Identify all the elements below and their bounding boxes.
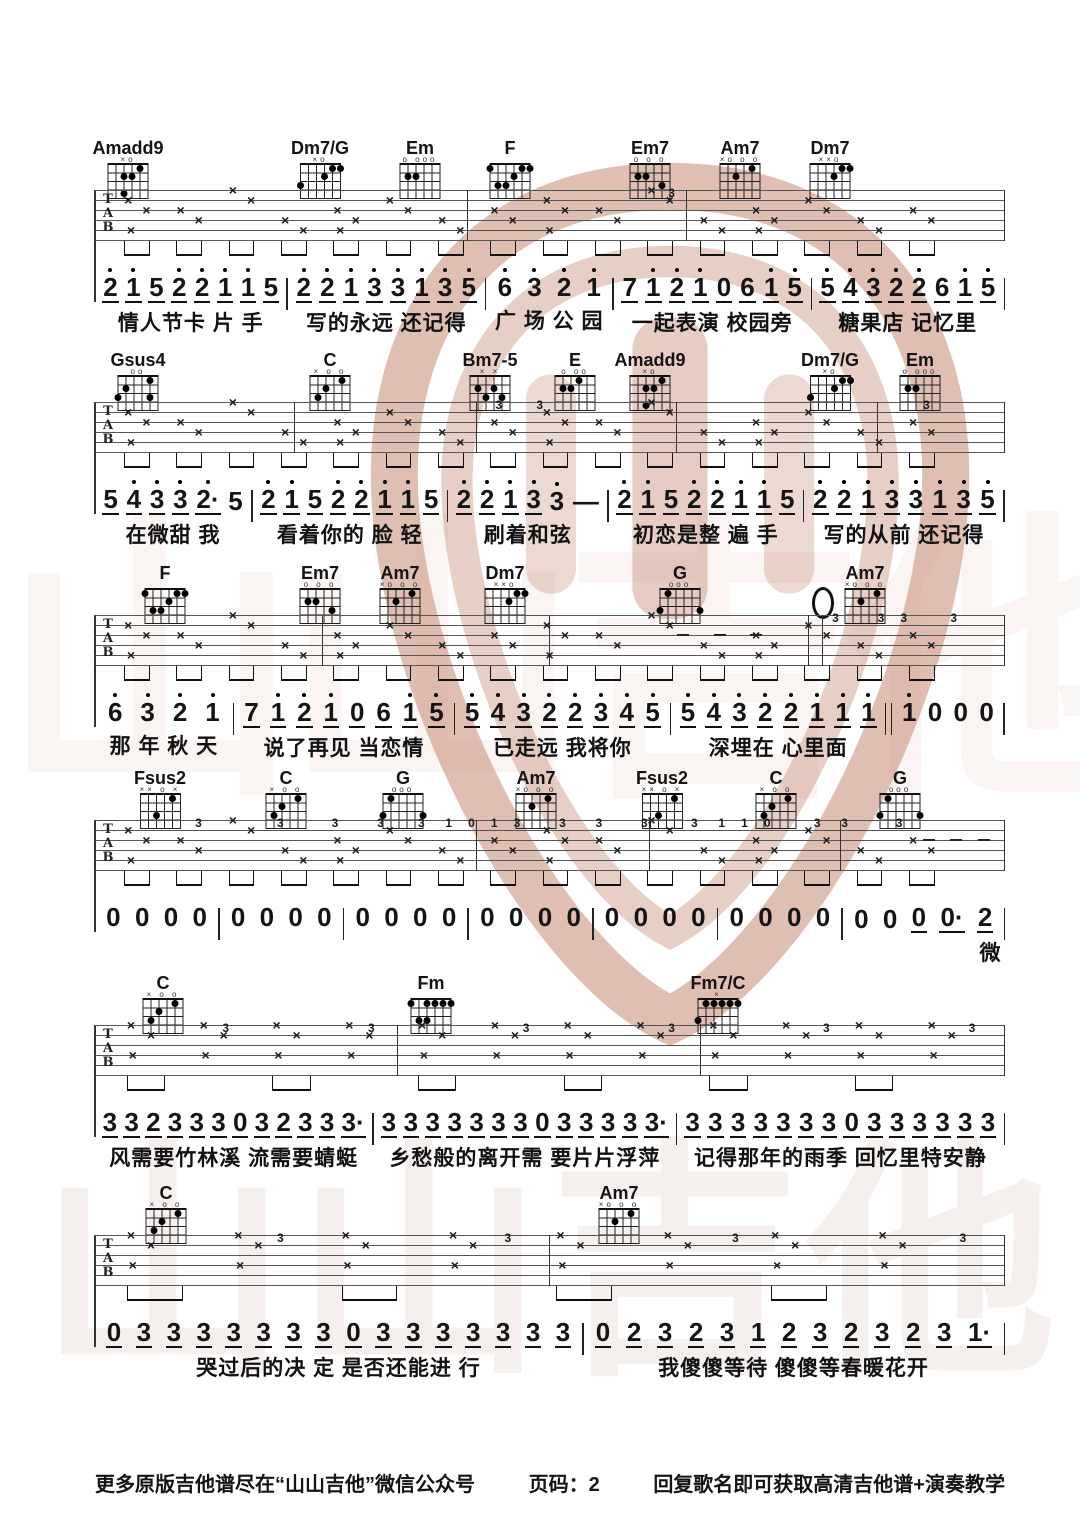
note-number: 3: [936, 1318, 952, 1348]
note-number: 0: [412, 903, 428, 931]
note-number: 2: [194, 273, 210, 303]
note-number: 4: [619, 698, 635, 728]
note-number: 5: [428, 698, 444, 728]
melody-note: 5: [428, 693, 444, 728]
strum-x-mark: ×: [709, 1020, 717, 1030]
staff-barline: [686, 190, 687, 241]
melody-note: 1: [763, 268, 779, 303]
melody-notes: 0000: [718, 898, 841, 931]
note-number: 1: [343, 273, 359, 303]
strum-x-mark: ×: [613, 215, 621, 225]
melody-note: 2: [977, 898, 993, 933]
melody-note: 0: [508, 898, 524, 931]
beam-group: [386, 241, 412, 256]
melody-note: 2: [686, 480, 702, 515]
melody-note: 1: [957, 268, 973, 303]
melody-note: 2: [669, 268, 685, 303]
strum-x-mark: ×: [770, 845, 778, 855]
melody-note: 3: [189, 1103, 205, 1138]
melody-notes: 0000: [95, 898, 218, 931]
melody-note: 5: [779, 480, 795, 515]
melody-note: 5: [102, 480, 118, 515]
strum-x-mark: ×: [490, 417, 498, 427]
note-number: 0: [565, 903, 581, 931]
strum-x-mark: ×: [124, 195, 132, 205]
chord-finger-dot: [432, 1000, 439, 1007]
strum-x-mark: ×: [127, 1230, 135, 1240]
note-number: 3: [254, 1108, 270, 1138]
jianpu-line: 332333032333·风需要竹林溪 流需要蜻蜓3333333033333·乡…: [95, 1103, 1005, 1172]
melody-note: 0: [690, 898, 706, 931]
melody-note: 5: [148, 268, 164, 303]
fret-number: 3: [536, 400, 543, 410]
note-number: 5: [979, 485, 995, 515]
note-number: 2·: [195, 485, 220, 515]
chord-finger-dot: [136, 165, 143, 172]
chord-finger-dot: [917, 812, 924, 819]
lyric-text: 刷着和弦: [448, 519, 607, 549]
note-number: 5: [819, 273, 835, 303]
strum-x-mark: ×: [771, 1230, 779, 1240]
strum-x-mark: ×: [909, 417, 917, 427]
beam-group: [543, 241, 569, 256]
beam-group: [438, 871, 464, 886]
melody-note: 2: [567, 693, 583, 728]
strum-x-mark: ×: [545, 437, 553, 447]
melody-note: 3: [405, 1313, 421, 1348]
tab-staff: TAB××××××××××××××××××××××××××××××××××××3…: [95, 1025, 1005, 1076]
chord-finger-dot: [148, 1017, 155, 1024]
strum-x-mark: ×: [927, 427, 935, 437]
chord-name: Gsus4: [110, 352, 165, 368]
note-number: 0: [595, 1318, 611, 1348]
chord-finger-dot: [858, 598, 865, 605]
strum-x-mark: ×: [613, 427, 621, 437]
chord-finger-dot: [315, 394, 322, 401]
melody-note: 0: [349, 693, 365, 728]
beam-group: [752, 666, 778, 681]
note-number: 2: [669, 273, 685, 303]
melody-note: 3: [136, 1313, 152, 1348]
jianpu-line: 6321那 年 秋 天71210615说了再见 当恋情54322345已走远 我…: [95, 693, 1005, 762]
strum-x-mark: ×: [909, 630, 917, 640]
lyric-text: 说了再见 当恋情: [234, 732, 453, 762]
chord-finger-dot: [642, 385, 649, 392]
melody-note: 1: [323, 693, 339, 728]
note-number: 0: [953, 698, 969, 726]
chord-finger-dot: [560, 385, 567, 392]
note-number: 2: [688, 1318, 704, 1348]
beam-group: [127, 1286, 183, 1301]
fret-number: 3: [668, 188, 675, 198]
strum-x-mark: ×: [595, 835, 603, 845]
measure-barline: [1004, 278, 1006, 310]
note-number: 3: [210, 1108, 226, 1138]
melody-note: 1: [756, 480, 772, 515]
melody-note: 1: [402, 693, 418, 728]
tab-letter: B: [102, 221, 114, 234]
strum-x-mark: ×: [638, 1050, 646, 1060]
strum-x-mark: ×: [636, 1020, 644, 1030]
melody-note: 0·: [939, 898, 964, 933]
measure-barline: [1004, 908, 1006, 940]
melody-measure: 54322345已走远 我将你: [455, 693, 669, 762]
chord-finger-dot: [545, 795, 552, 802]
tab-staff: TAB××××××××××××××××××××××××××××××××××××3…: [95, 820, 1005, 871]
strum-x-mark: ×: [647, 397, 655, 407]
strum-x-mark: ×: [543, 825, 551, 835]
lyric-text: 情人节卡 片 手: [95, 307, 286, 337]
melody-note: 3: [172, 480, 188, 515]
note-number: 0: [815, 903, 831, 931]
strum-x-mark: ×: [236, 1260, 244, 1270]
strum-x-mark: ×: [584, 1030, 592, 1040]
note-number: 3: [512, 1108, 528, 1138]
strum-x-mark: ×: [755, 437, 763, 447]
chord-finger-dot: [702, 1000, 709, 1007]
strum-x-mark: ×: [247, 825, 255, 835]
note-number: 5: [464, 698, 480, 728]
note-number: 3: [821, 1108, 837, 1138]
strum-x-mark: ×: [456, 650, 464, 660]
strum-x-mark: ×: [142, 835, 150, 845]
note-number: 5: [980, 273, 996, 303]
melody-notes: 0000: [594, 898, 717, 931]
fret-number: 3: [969, 1023, 976, 1033]
strum-x-mark: ×: [274, 1050, 282, 1060]
note-number: 3: [166, 1318, 182, 1348]
melody-notes: 33333330333333: [677, 1103, 1003, 1138]
chord-finger-dot: [726, 1000, 733, 1007]
fret-number: 3: [596, 818, 603, 828]
strum-x-mark: ×: [247, 407, 255, 417]
chord-finger-dot: [323, 385, 330, 392]
melody-note: 5: [464, 693, 480, 728]
jianpu-line: 0000000000000000000000000000·2微: [95, 898, 1005, 967]
note-number: 2: [556, 273, 572, 301]
note-number: 0: [232, 1108, 248, 1138]
chord-finger-dot: [120, 173, 127, 180]
melody-notes: 0232312323231·: [584, 1313, 1004, 1348]
strum-x-mark: ×: [386, 620, 394, 630]
note-number: 1: [204, 698, 220, 726]
note-number: 3: [593, 698, 609, 728]
chord-string-markers: ×× o ×: [636, 786, 688, 793]
strum-x-mark: ×: [561, 205, 569, 215]
strum-x-mark: ×: [595, 630, 603, 640]
strum-x-mark: ×: [857, 427, 865, 437]
note-number: 3: [319, 1108, 335, 1138]
note-number: 1: [763, 273, 779, 303]
melody-note: 3: [468, 1103, 484, 1138]
melody-measure: 0000·2微: [843, 898, 1004, 967]
strum-x-mark: ×: [656, 1030, 664, 1040]
note-number: 0: [911, 903, 927, 933]
strum-x-mark: ×: [345, 1020, 353, 1030]
strum-x-mark: ×: [438, 215, 446, 225]
note-number: 0·: [939, 903, 964, 933]
melody-note: 2: [556, 268, 572, 301]
beam-group: [556, 1286, 612, 1301]
fret-number: 3: [950, 613, 957, 623]
strum-x-mark: ×: [545, 855, 553, 865]
melody-note: 3: [730, 1103, 746, 1138]
fret-number: 3: [277, 1233, 284, 1243]
chord-name: Am7: [845, 565, 886, 581]
melody-note: 4: [705, 693, 721, 728]
melody-note: 3: [490, 1103, 506, 1138]
strum-x-mark: ×: [438, 1030, 446, 1040]
melody-note: 1: [750, 1313, 766, 1348]
note-number: 3: [884, 485, 900, 515]
melody-measure: 71210615一起表演 校园旁: [614, 268, 811, 337]
chord-name: G: [383, 770, 424, 786]
fret-number: 3: [523, 1023, 530, 1033]
melody-note: 5: [644, 693, 660, 728]
note-number: 1: [750, 1318, 766, 1348]
note-number: 2: [757, 698, 773, 728]
strum-x-mark: ×: [229, 185, 237, 195]
melody-note: 3: [166, 1313, 182, 1348]
beam-group: [700, 241, 726, 256]
note-number: 3: [731, 698, 747, 728]
melody-notes: 0000: [344, 898, 467, 931]
staff-barline: [549, 1235, 550, 1286]
melody-notes: 22133135: [804, 480, 1003, 515]
note-number: 0: [383, 903, 399, 931]
melody-note: 2: [781, 1313, 797, 1348]
chord-finger-dot: [305, 598, 312, 605]
melody-note: 2: [688, 1313, 704, 1348]
note-number: 2: [353, 485, 369, 515]
beam-group: [229, 871, 255, 886]
melody-note: 3: [798, 1103, 814, 1138]
strum-x-mark: ×: [857, 845, 865, 855]
lyric-text: 乡愁般的离开需 要片片浮萍: [374, 1142, 676, 1172]
strum-x-mark: ×: [511, 1030, 519, 1040]
strum-x-mark: ×: [490, 205, 498, 215]
chord-finger-dot: [568, 385, 575, 392]
strum-x-mark: ×: [147, 1240, 155, 1250]
beam-group: [490, 871, 516, 886]
note-number: 3·: [341, 1108, 366, 1138]
melody-note: 3: [719, 1313, 735, 1348]
chord-string-markers: o ooo: [400, 156, 441, 163]
chord-string-markers: ooo: [880, 786, 921, 793]
lyric-text: 在微甜 我: [95, 519, 251, 549]
strum-x-mark: ×: [469, 1240, 477, 1250]
chord-finger-dot: [150, 607, 157, 614]
melody-note: 4: [619, 693, 635, 728]
chord-finger-dot: [424, 1000, 431, 1007]
strum-x-mark: ×: [352, 640, 360, 650]
note-number: 2: [836, 485, 852, 515]
strum-x-mark: ×: [299, 225, 307, 235]
chord-name: Am7: [516, 770, 557, 786]
chord-string-markers: × o o: [146, 1201, 187, 1208]
melody-note: 1: [932, 480, 948, 515]
strum-x-mark: ×: [299, 437, 307, 447]
note-number: 6: [107, 698, 123, 726]
beam-group: [176, 871, 202, 886]
strum-x-mark: ×: [543, 620, 551, 630]
lyric-text: 写的永远 还记得: [288, 307, 485, 337]
strum-x-mark: ×: [647, 610, 655, 620]
melody-note: 3: [874, 1313, 890, 1348]
chord-finger-dot: [511, 173, 518, 180]
chord-string-markers: ×o o o: [845, 581, 886, 588]
note-number: 1: [400, 485, 416, 515]
strum-x-mark: ×: [823, 417, 831, 427]
melody-note: 1: [204, 693, 220, 726]
melody-note: 3: [495, 1313, 511, 1348]
beam-group: [281, 241, 307, 256]
melody-note: 0: [786, 898, 802, 931]
melody-note: 0: [911, 898, 927, 933]
strum-x-mark: ×: [804, 825, 812, 835]
beam-group: [752, 871, 778, 886]
chord-finger-dot: [529, 803, 536, 810]
melody-note: 3: [319, 1103, 335, 1138]
chord-finger-dot: [839, 377, 846, 384]
chord-finger-dot: [329, 165, 336, 172]
note-number: 0: [853, 905, 869, 933]
chord-finger-dot: [475, 385, 482, 392]
melody-note: 3: [593, 693, 609, 728]
melody-note: 3: [375, 1313, 391, 1348]
beam-group: [595, 241, 621, 256]
lyric-text: 一起表演 校园旁: [614, 307, 811, 337]
strum-x-mark: ×: [927, 845, 935, 855]
measure-barline: [1004, 1113, 1006, 1145]
chord-finger-dot: [166, 598, 173, 605]
strum-x-mark: ×: [176, 630, 184, 640]
strum-x-mark: ×: [176, 835, 184, 845]
note-number: 0: [604, 903, 620, 931]
note-number: 2: [145, 1108, 161, 1138]
beam-group: [752, 241, 778, 256]
note-number: 1: [645, 273, 661, 303]
strum-x-mark: ×: [791, 1240, 799, 1250]
melody-note: 1·: [967, 1313, 992, 1348]
melody-measure: 0000: [344, 898, 467, 967]
note-number: 5: [644, 698, 660, 728]
beam-group: [595, 871, 621, 886]
note-number: 1: [932, 485, 948, 515]
melody-notes: 6321: [486, 268, 612, 301]
melody-note: 3: [912, 1103, 928, 1138]
beam-group: [281, 666, 307, 681]
chord-finger-dot: [847, 165, 854, 172]
strum-x-mark: ×: [857, 215, 865, 225]
chord-name: Fm: [411, 975, 452, 991]
strum-x-mark: ×: [927, 215, 935, 225]
melody-note: 3: [955, 480, 971, 515]
staff-barline: [1004, 1235, 1005, 1286]
beam-group: [752, 453, 778, 468]
melody-note: 3: [366, 268, 382, 303]
tab-letter: B: [102, 1266, 114, 1279]
beam-group: [771, 1286, 827, 1301]
chord-name: C: [756, 770, 797, 786]
strum-x-mark: ×: [336, 437, 344, 447]
melody-note: 4: [842, 268, 858, 303]
beam-group: [700, 871, 726, 886]
melody-notes: 54322615: [812, 268, 1003, 303]
strum-x-mark: ×: [948, 1030, 956, 1040]
note-number: 1: [376, 485, 392, 515]
beam-group: [909, 241, 935, 256]
strum-x-mark: ×: [684, 1240, 692, 1250]
melody-note: 3: [196, 1313, 212, 1348]
beam-group: [418, 1076, 456, 1091]
melody-note: 5: [786, 268, 802, 303]
rest-dash: [978, 839, 990, 841]
melody-measure: 21522115初恋是整 遍 手: [609, 480, 803, 549]
melody-note: 0: [728, 898, 744, 931]
tab-letter: B: [102, 1056, 114, 1069]
note-number: 3: [600, 1108, 616, 1138]
beam-group: [490, 666, 516, 681]
tab-letter: A: [102, 207, 114, 220]
strum-x-mark: ×: [545, 225, 553, 235]
strum-x-mark: ×: [142, 417, 150, 427]
chord-finger-dot: [147, 394, 154, 401]
strum-x-mark: ×: [773, 1260, 781, 1270]
fret-number: 3: [505, 1233, 512, 1243]
fret-number: 3: [418, 818, 425, 828]
strum-x-mark: ×: [127, 1020, 135, 1030]
melody-note: 5: [423, 480, 439, 515]
chord-finger-dot: [503, 182, 510, 189]
note-number: 5: [663, 485, 679, 515]
sheet-music-page: 山山吉他 山山吉他 Amadd9×oDm7/G×oEmo oooFEm7o o …: [0, 0, 1080, 1527]
note-number: 3: [468, 1108, 484, 1138]
strum-x-mark: ×: [343, 1260, 351, 1270]
melody-note: 0: [354, 898, 370, 931]
strum-x-mark: ×: [404, 205, 412, 215]
strum-x-mark: ×: [509, 427, 517, 437]
melody-measure: 0000: [95, 898, 218, 967]
strum-x-mark: ×: [333, 630, 341, 640]
melody-note: 1: [692, 268, 708, 303]
chord-name: Amadd9: [614, 352, 685, 368]
melody-note: 3: [525, 1313, 541, 1348]
melody-note: 3: [403, 1103, 419, 1138]
strum-x-mark: ×: [281, 640, 289, 650]
melody-note: 3: [865, 268, 881, 303]
fret-number: 3: [514, 818, 521, 828]
strum-x-mark: ×: [176, 205, 184, 215]
melody-note: 2: [275, 1103, 291, 1138]
note-number: 3: [446, 1108, 462, 1138]
strum-x-mark: ×: [899, 1240, 907, 1250]
note-number: 0: [927, 698, 943, 726]
melody-note: 1: [645, 268, 661, 303]
strum-x-mark: ×: [247, 195, 255, 205]
jianpu-line: 21522115情人节卡 片 手22133135写的永远 还记得6321广 场 …: [95, 268, 1005, 337]
note-number: 3: [390, 273, 406, 303]
strum-x-mark: ×: [823, 835, 831, 845]
melody-note: 1: [834, 693, 850, 728]
fret-number: 0: [468, 818, 475, 828]
strum-x-mark: ×: [647, 185, 655, 195]
strum-x-mark: ×: [664, 1230, 672, 1240]
strum-x-mark: ×: [142, 205, 150, 215]
rest-dash: [677, 634, 689, 636]
strum-x-mark: ×: [418, 1020, 426, 1030]
melody-note: 0: [163, 898, 179, 931]
